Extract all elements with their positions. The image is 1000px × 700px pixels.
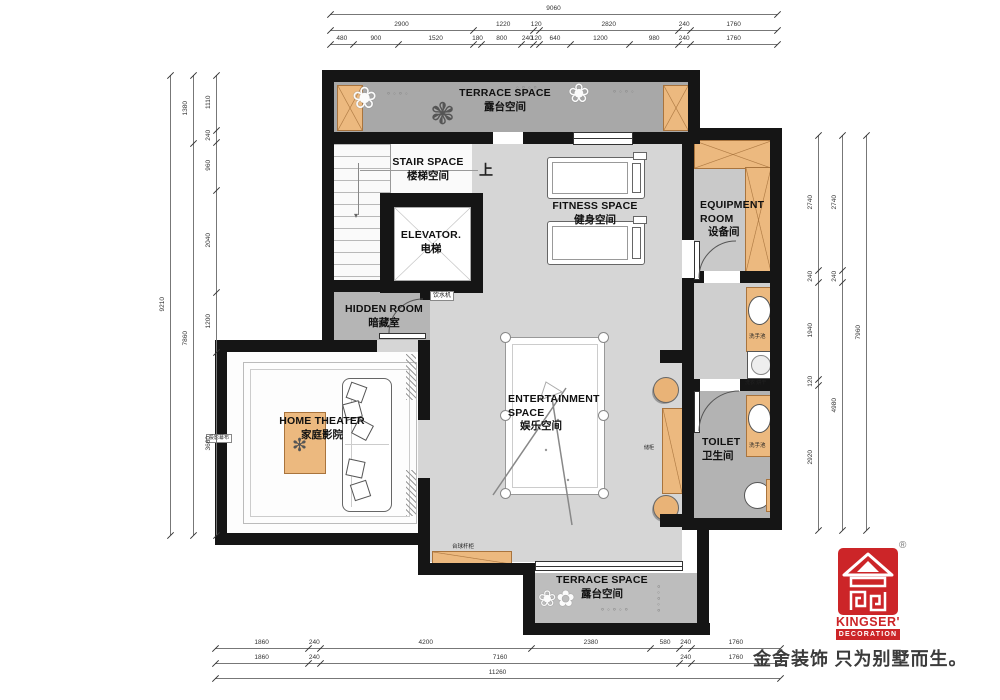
dim-value: 4980 [832,389,839,423]
brand-tagline: 金舍装饰 只为别墅而生。 [753,645,968,671]
dim-baseline-bottom-mid [215,663,780,664]
dim-baseline-bottom-total [215,678,780,679]
dim-value: 1860 [245,640,279,647]
dim-value: 240 [297,655,331,662]
dim-value: 1220 [486,22,520,29]
dim-value: 120 [808,364,815,398]
dim-value: 11260 [481,670,515,677]
dim-baseline-top-total [330,14,777,15]
dim-value: 980 [637,36,671,43]
logo-sub-text: DECORATION [836,629,900,640]
dim-baseline-right-mid [842,135,843,530]
dim-baseline-left-total [170,75,171,535]
dim-baseline-top-mid [330,30,777,31]
kingser-logo-icon [838,548,898,615]
dim-value: 1380 [183,92,190,126]
dim-value: 2740 [832,185,839,219]
dim-value: 1760 [717,36,751,43]
dim-value: 1860 [245,655,279,662]
dim-value: 240 [808,259,815,293]
dim-value: 2920 [808,440,815,474]
dim-value: 240 [832,259,839,293]
dim-value: 1760 [719,655,753,662]
dim-value: 240 [667,22,701,29]
dim-baseline-bottom-detail [215,648,780,649]
dim-value: 240 [667,36,701,43]
dim-value: 9060 [537,6,571,13]
dim-value: 900 [359,36,393,43]
dim-baseline-right-total [866,135,867,530]
dim-value: 1520 [419,36,453,43]
dim-value: 9210 [160,287,167,321]
dim-value: 240 [669,655,703,662]
dim-baseline-left-detail [216,75,217,535]
dim-value: 3660 [206,426,213,460]
registered-mark-icon: ® [899,540,906,551]
dim-value: 480 [325,36,359,43]
dim-value: 960 [206,149,213,183]
dim-value: 240 [297,640,331,647]
dim-value: 7160 [483,655,517,662]
dim-value: 1760 [719,640,753,647]
dim-value: 1200 [206,304,213,338]
dim-value: 2380 [574,640,608,647]
dim-value: 1200 [583,36,617,43]
dim-value: 2740 [808,185,815,219]
dim-value: 2040 [206,224,213,258]
dim-baseline-right-detail [818,135,819,530]
dim-value: 7960 [856,315,863,349]
dim-value: 240 [669,640,703,647]
dim-value: 1110 [206,85,213,119]
floor-plan: ▾ ✻ [0,0,1000,700]
dim-value: 2900 [385,22,419,29]
dim-value: 4200 [409,640,443,647]
dim-value: 1940 [808,313,815,347]
dim-value: 7860 [183,322,190,356]
dim-value: 1760 [717,22,751,29]
logo-brand-text: KINGSER' [834,615,902,629]
dim-value: 2820 [592,22,626,29]
